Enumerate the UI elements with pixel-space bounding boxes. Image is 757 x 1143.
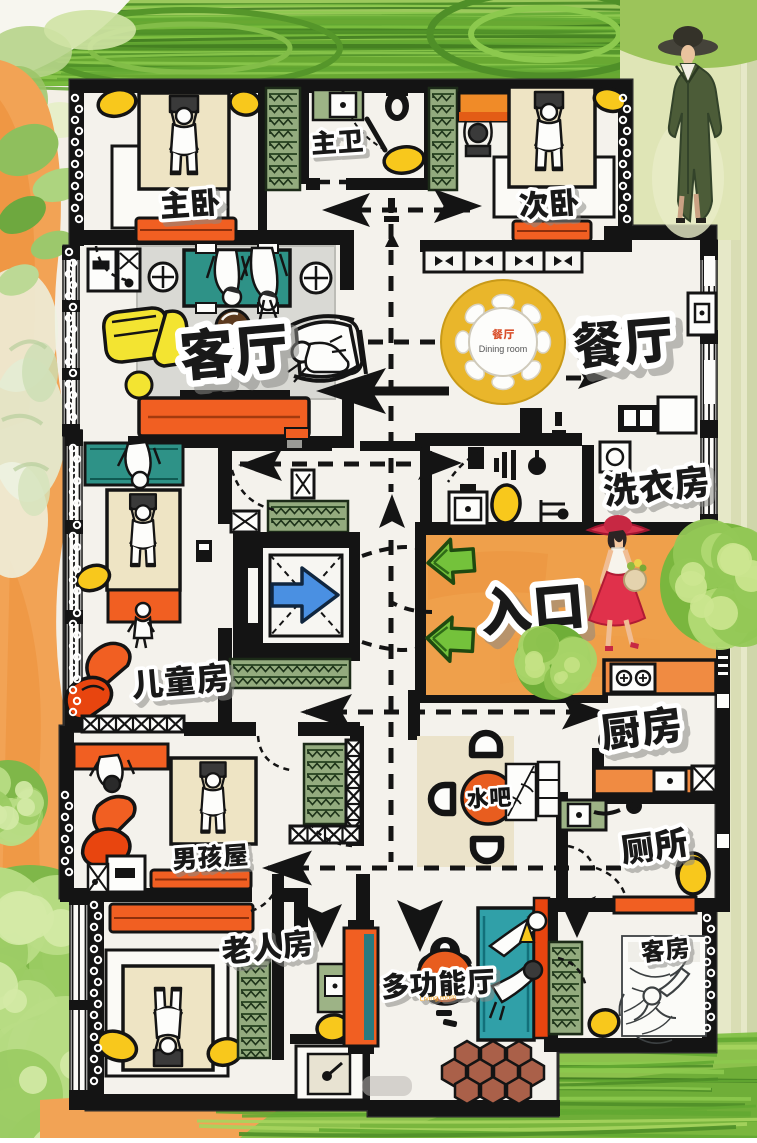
svg-text:Dining room: Dining room [479,344,528,354]
